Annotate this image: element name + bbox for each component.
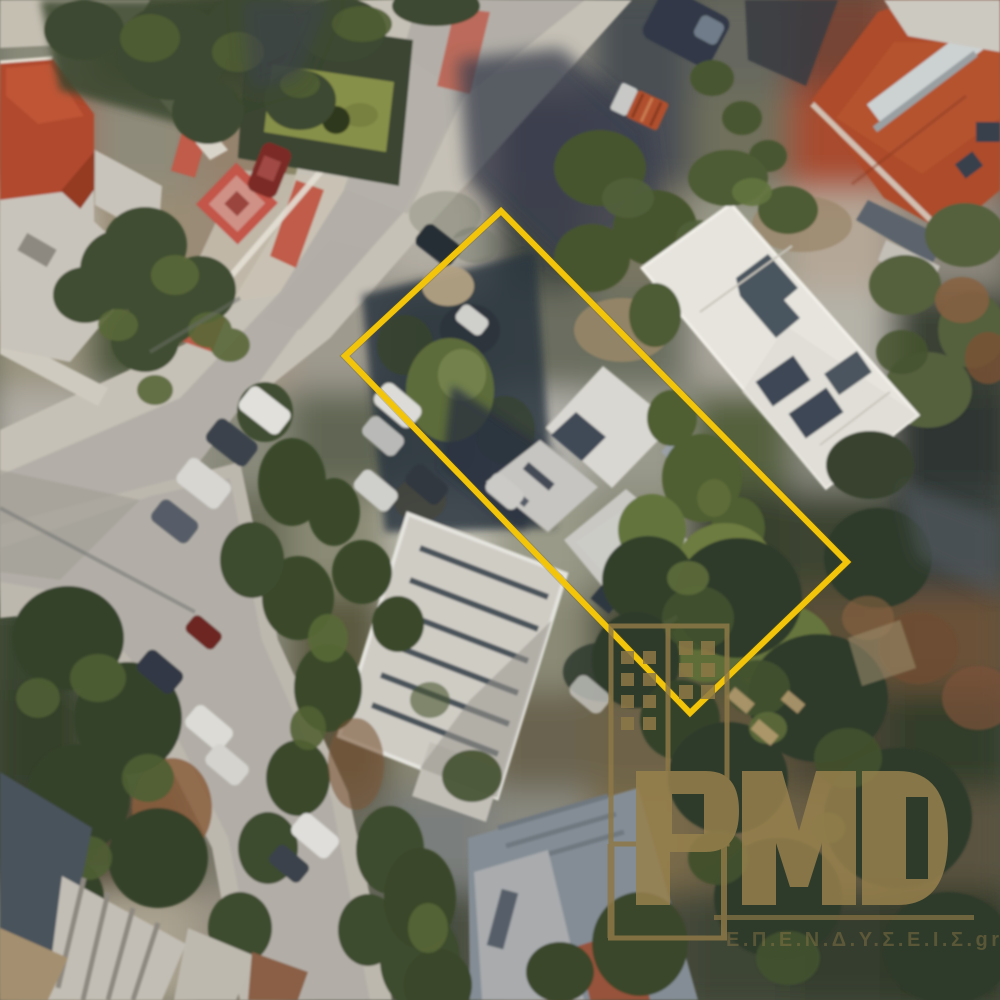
svg-text:Ε.Π.Ε.Ν.Δ.Υ.Σ.Ε.Ι.Σ.gr: Ε.Π.Ε.Ν.Δ.Υ.Σ.Ε.Ι.Σ.gr — [726, 929, 1000, 951]
